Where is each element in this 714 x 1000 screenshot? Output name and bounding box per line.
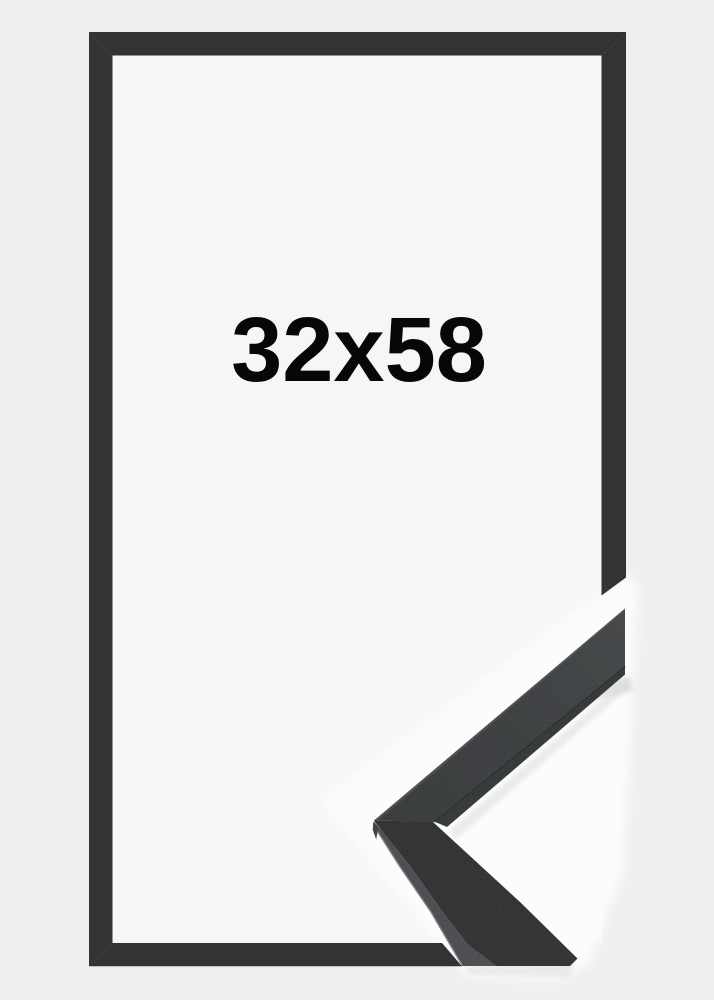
- svg-text:32x58: 32x58: [231, 299, 487, 401]
